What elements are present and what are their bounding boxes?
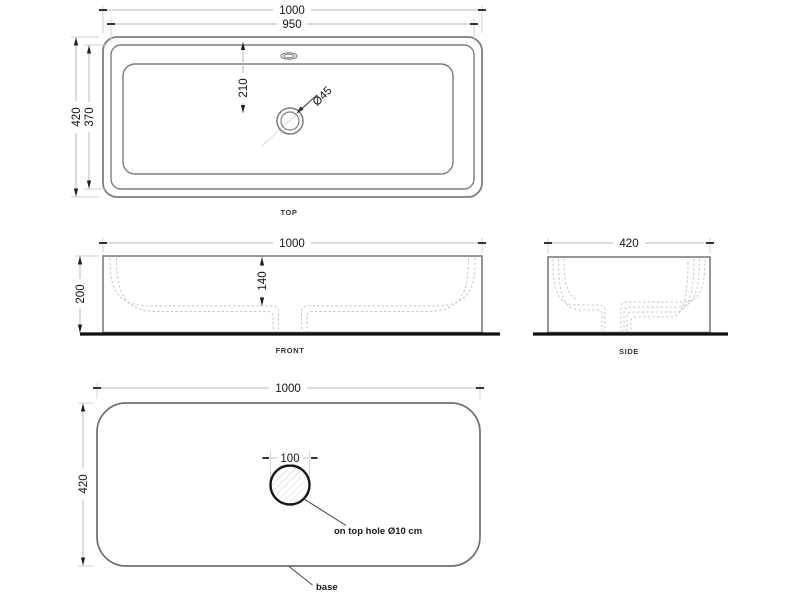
top-rim-width-dim: 950 [282, 19, 301, 31]
top-bowl-outline [123, 64, 453, 174]
drain-centerline [262, 99, 313, 146]
side-view-label: SIDE [619, 347, 639, 356]
top-width-dim: 1000 [279, 5, 305, 17]
drain-diameter-dim: Ø45 [311, 85, 335, 109]
front-height-dim: 200 [75, 284, 87, 303]
top-view: 1000 950 420 370 210 Ø45 TOP [70, 4, 487, 218]
top-extension-lines [71, 6, 482, 198]
drain-offset-dim: 210 [238, 78, 250, 97]
base-width-dim: 1000 [275, 383, 301, 395]
base-label-leader [289, 567, 313, 586]
base-depth-dim: 420 [78, 474, 90, 493]
top-rim-depth-dim: 370 [84, 107, 96, 126]
side-view: 420 SIDE [533, 237, 728, 357]
technical-drawing: 1000 950 420 370 210 Ø45 TOP [0, 0, 800, 600]
top-rim-outline [111, 45, 474, 189]
front-width-dim: 1000 [279, 238, 305, 250]
top-depth-dim: 420 [71, 107, 83, 126]
front-view-label: FRONT [276, 346, 305, 355]
overflow-slot [281, 53, 297, 59]
hole-note: on top hole Ø10 cm [334, 526, 422, 537]
top-outer-outline [103, 37, 482, 197]
top-view-label: TOP [280, 208, 297, 217]
hole-box-dim: 100 [280, 453, 299, 465]
front-body-outline [103, 256, 482, 333]
mounting-hole [271, 466, 310, 505]
front-view: 1000 200 140 FRONT [74, 237, 501, 356]
side-depth-dim: 420 [619, 238, 638, 250]
base-label: base [316, 582, 338, 593]
drawing-canvas: 1000 950 420 370 210 Ø45 TOP [0, 0, 800, 600]
top-dimension-lines [76, 10, 482, 197]
base-view: 1000 420 100 on top hole Ø10 cm base [77, 382, 485, 594]
front-basin-depth-dim: 140 [257, 271, 269, 290]
